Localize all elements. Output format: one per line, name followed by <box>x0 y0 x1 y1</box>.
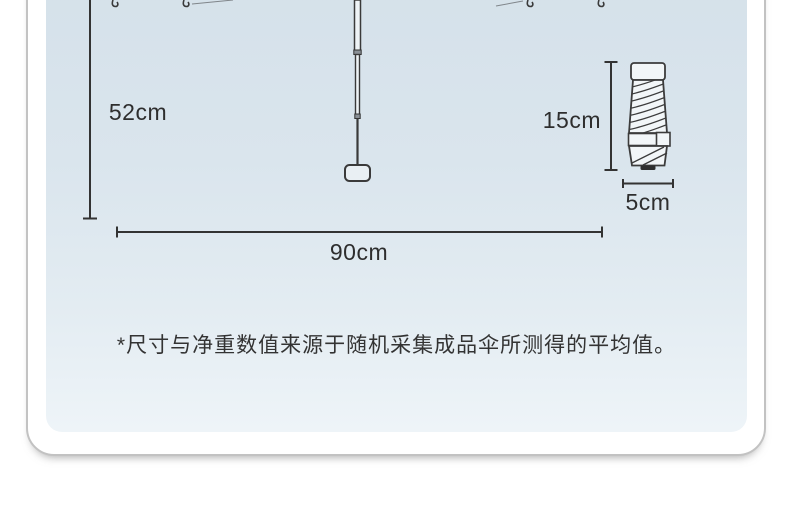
size-card-panel <box>46 0 747 432</box>
folded-height-label: 15cm <box>520 107 601 133</box>
open-height-label: 52cm <box>100 99 176 125</box>
folded-width-label: 5cm <box>613 189 683 215</box>
product-size-section: 52cm 90cm 15cm 5cm *尺寸与净重数值来源于随机采集成品伞所测得… <box>0 0 790 509</box>
measurement-footnote: *尺寸与净重数值来源于随机采集成品伞所测得的平均值。 <box>46 333 747 358</box>
canopy-width-label: 90cm <box>283 239 435 265</box>
